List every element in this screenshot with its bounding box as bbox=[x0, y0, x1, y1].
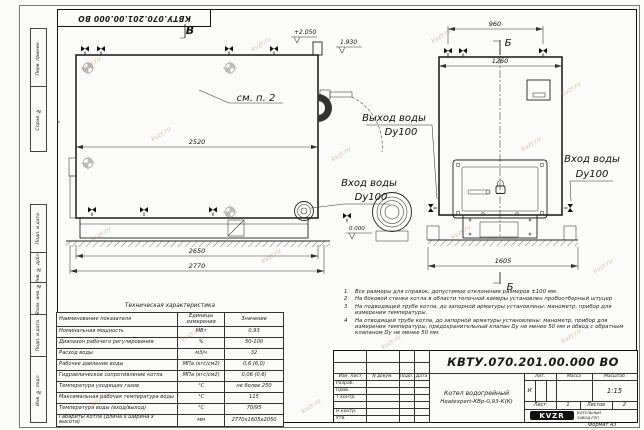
title-block: Изм. Лист N докум. Подп. Дата Разраб. Пр… bbox=[333, 350, 638, 423]
water-valve-right-icon bbox=[564, 204, 573, 212]
tech-cell: Номинальная мощность bbox=[57, 327, 178, 338]
tech-table-title: Техническая характеристика bbox=[56, 303, 284, 309]
view-a-label: А bbox=[482, 18, 492, 21]
tech-cell: 0,93 bbox=[225, 327, 284, 338]
tech-cell: Гидравлическое сопротивление котла bbox=[57, 371, 178, 382]
tech-row: Рабочее давление водыМПа (кгс/см2)0,6 (6… bbox=[57, 360, 284, 371]
section-b-top-label: Б bbox=[505, 38, 512, 49]
water-in-label: Вход воды bbox=[341, 178, 397, 189]
tech-cell: МПа (кгс/см2) bbox=[178, 360, 225, 371]
margin-box-label: Подп. и дата bbox=[36, 320, 41, 351]
tech-cell: Максимальная рабочая температура воды bbox=[57, 393, 178, 404]
margin-box-label: Подп. и дата bbox=[36, 213, 41, 244]
tech-col-value: Значение bbox=[225, 313, 284, 327]
tech-cell: 0,06 (0,6) bbox=[225, 371, 284, 382]
tech-cell: 2770х1605х2050 bbox=[225, 415, 284, 427]
tb-razrab: Разраб. bbox=[334, 380, 368, 387]
margin-box-label: Справ. № bbox=[36, 108, 41, 131]
note-item: 3На подводящей трубе котла, до запорной … bbox=[344, 304, 636, 317]
tb-product-name: Котел водогрейный Heatexpert-КВр-0,93-К(… bbox=[429, 373, 524, 422]
note-number: 4 bbox=[344, 318, 355, 337]
drain-tap-icon bbox=[140, 207, 148, 216]
tb-lit-label: Лит. bbox=[524, 373, 556, 380]
tb-header-data: Дата bbox=[414, 373, 429, 380]
tb-sheets-label: Листов bbox=[580, 401, 612, 409]
safety-valve-icon bbox=[225, 46, 233, 55]
margin-box-perv-primen: Перв. примен. bbox=[30, 28, 47, 88]
tb-company-line2: ЗАВОД РЭП bbox=[577, 416, 635, 420]
tech-col-units: Единицы измерения bbox=[178, 313, 225, 327]
tb-header-ndoc: N докум. bbox=[366, 373, 399, 380]
boiler-base-side bbox=[80, 218, 308, 238]
tech-cell: не более 250 bbox=[225, 382, 284, 393]
door-swing-arc bbox=[352, 97, 382, 152]
margin-box-podp-data-2: Подп. и дата bbox=[30, 314, 47, 358]
side-view: 2520 2650 2770 +2.050 1.930 0.000 А В см… bbox=[57, 24, 437, 274]
side-pipe bbox=[70, 176, 76, 218]
tb-utv: Утв. bbox=[334, 415, 368, 422]
ground-hatch bbox=[428, 240, 578, 246]
tb-company: КОТЕЛЬНЫЙ ЗАВОД РЭП bbox=[577, 410, 635, 421]
tb-tkontr: Т.контр. bbox=[334, 394, 368, 401]
tech-cell: 50-100 bbox=[225, 338, 284, 349]
target-mark-icon bbox=[223, 61, 237, 75]
tech-cell: °С bbox=[178, 382, 225, 393]
tech-cell: мм bbox=[178, 415, 225, 427]
tb-header-izm: Изм. Лист bbox=[334, 373, 366, 380]
margin-box-podp-data: Подп. и дата bbox=[30, 204, 47, 254]
safety-valve-icon bbox=[81, 46, 89, 55]
dim-1605: 1605 bbox=[495, 257, 512, 265]
tb-doc-number: КВТУ.070.201.00.000 ВО bbox=[429, 351, 637, 373]
elevation-mark-icon bbox=[346, 233, 372, 239]
water-in-dn: Dy100 bbox=[355, 192, 388, 203]
tech-row: Габариты котла (длина х ширина х высота)… bbox=[57, 415, 284, 427]
tech-cell: 0,6 (6,0) bbox=[225, 360, 284, 371]
see-note-annotation: см. п. 2 bbox=[237, 93, 276, 104]
water-inlet-flange bbox=[295, 202, 314, 221]
tech-characteristics: Техническая характеристика Наименование … bbox=[56, 303, 284, 427]
tech-row: Расход водым3/ч32 bbox=[57, 349, 284, 360]
water-out-label: Выход воды bbox=[362, 113, 426, 124]
safety-valve-icon bbox=[539, 48, 547, 57]
note-text: Все размеры для справок, допустимое откл… bbox=[355, 289, 636, 295]
tb-scale-value: 1:15 bbox=[592, 380, 637, 401]
tech-cell: МПа (кгс/см2) bbox=[178, 371, 225, 382]
dim-2520: 2520 bbox=[189, 138, 206, 146]
elev-2050: +2.050 bbox=[294, 29, 316, 36]
tech-row: Номинальная мощностьМВт0,93 bbox=[57, 327, 284, 338]
note-item: 1Все размеры для справок, допустимое отк… bbox=[344, 289, 636, 295]
margin-box-label: Инв. № подл. bbox=[36, 374, 41, 406]
water-in-right-dn: Dy100 bbox=[576, 169, 609, 180]
tech-table: Наименование показателя Единицы измерени… bbox=[56, 312, 284, 427]
tb-prov: Пров. bbox=[334, 387, 368, 394]
front-view: 960 1260 1605 А Б Б Вход воды Dy100 bbox=[427, 18, 620, 293]
tb-mass-label: Масса bbox=[556, 373, 592, 380]
target-mark-icon bbox=[81, 156, 95, 170]
tech-cell: Габариты котла (длина х ширина х высота) bbox=[57, 415, 178, 427]
tech-cell: Рабочее давление воды bbox=[57, 360, 178, 371]
drain-tap-icon bbox=[209, 207, 217, 216]
tech-cell: °С bbox=[178, 404, 225, 415]
tech-cell: м3/ч bbox=[178, 349, 225, 360]
tb-lit-value: И bbox=[524, 380, 535, 401]
margin-box-label: Инв. № дубл. bbox=[36, 252, 41, 284]
tb-product-line2: Heatexpert-КВр-0,93-К(К) bbox=[440, 399, 512, 405]
elev-1930: 1.930 bbox=[340, 39, 357, 46]
burner-pipe-2 bbox=[330, 92, 352, 97]
kvzr-logo: KVZR bbox=[530, 411, 574, 420]
tech-cell: Температура уходящих газов bbox=[57, 382, 178, 393]
tech-header-row: Наименование показателя Единицы измерени… bbox=[57, 313, 284, 327]
drain-tap-icon bbox=[343, 213, 351, 222]
margin-box-sprav-no: Справ. № bbox=[30, 86, 47, 152]
margin-box-vzam-inv: Взам. инв. № bbox=[30, 282, 47, 316]
chimney-stub bbox=[313, 42, 322, 55]
note-item: 4На отводящей трубе котла, до запорной а… bbox=[344, 318, 636, 337]
dim-960: 960 bbox=[489, 20, 501, 28]
tech-row: Гидравлическое сопротивление котлаМПа (к… bbox=[57, 371, 284, 382]
drain-tap-icon bbox=[88, 207, 96, 216]
safety-valve-icon bbox=[97, 46, 105, 55]
side-fitting bbox=[69, 158, 76, 176]
water-valve-left-icon bbox=[428, 204, 437, 212]
boiler-body-side bbox=[76, 55, 318, 218]
tb-scale-label: Масштаб bbox=[592, 373, 637, 380]
safety-valve-icon bbox=[444, 48, 452, 57]
elevation-mark-icon bbox=[336, 47, 362, 53]
boiler-body-front bbox=[439, 57, 562, 215]
tech-cell: Диапазон рабочего регулирования bbox=[57, 338, 178, 349]
margin-box-inv-dubl: Инв. № дубл. bbox=[30, 252, 47, 284]
dim-1260: 1260 bbox=[492, 57, 509, 65]
elev-0000: 0.000 bbox=[349, 226, 365, 232]
tech-cell: 115 bbox=[225, 393, 284, 404]
safety-valve-icon bbox=[270, 46, 278, 55]
tb-sheets-value: 2 bbox=[612, 401, 637, 409]
tb-product-line1: Котел водогрейный bbox=[444, 390, 509, 397]
dim-2770: 2770 bbox=[189, 262, 206, 270]
tech-cell: °С bbox=[178, 393, 225, 404]
margin-box-label: Взам. инв. № bbox=[36, 283, 41, 314]
notes-list: 1Все размеры для справок, допустимое отк… bbox=[344, 289, 636, 338]
tech-row: Температура воды (вход/выход)°С70/95 bbox=[57, 404, 284, 415]
note-number: 3 bbox=[344, 304, 355, 317]
view-b-label: В bbox=[186, 24, 194, 37]
margin-box-inv-podl: Инв. № подл. bbox=[30, 356, 47, 423]
safety-valve-icon bbox=[459, 48, 467, 57]
tech-cell: Расход воды bbox=[57, 349, 178, 360]
water-in-right-label: Вход воды bbox=[564, 154, 620, 165]
dim-2650: 2650 bbox=[189, 247, 206, 255]
tech-cell: 32 bbox=[225, 349, 284, 360]
note-item: 2На боковой стенке котла в области топоч… bbox=[344, 296, 636, 302]
note-number: 1 bbox=[344, 289, 355, 295]
tb-sheet-label: Лист bbox=[524, 401, 556, 409]
tech-col-name: Наименование показателя bbox=[57, 313, 178, 327]
margin-box-label: Перв. примен. bbox=[36, 41, 41, 76]
lock-icon bbox=[496, 181, 505, 194]
boiler-drawing: 2520 2650 2770 +2.050 1.930 0.000 А В см… bbox=[57, 18, 636, 302]
target-mark-icon bbox=[223, 205, 237, 219]
tb-nkontr: Н.контр. bbox=[334, 408, 368, 415]
tech-cell: 70/95 bbox=[225, 404, 284, 415]
drawing-sheet: { "sheet": { "stamp_top": "КВТУ.070.201.… bbox=[0, 0, 644, 430]
tech-row: Температура уходящих газов°Сне более 250 bbox=[57, 382, 284, 393]
tb-sheet-value: 1 bbox=[556, 401, 580, 409]
water-out-dn: Dy100 bbox=[385, 127, 418, 138]
note-text: На боковой стенке котла в области топочн… bbox=[355, 296, 636, 302]
tech-row: Диапазон рабочего регулирования%50-100 bbox=[57, 338, 284, 349]
tb-header-podp: Подп. bbox=[399, 373, 414, 380]
note-text: На подводящей трубе котла, до запорной а… bbox=[355, 304, 636, 317]
note-number: 2 bbox=[344, 296, 355, 302]
tech-cell: Температура воды (вход/выход) bbox=[57, 404, 178, 415]
